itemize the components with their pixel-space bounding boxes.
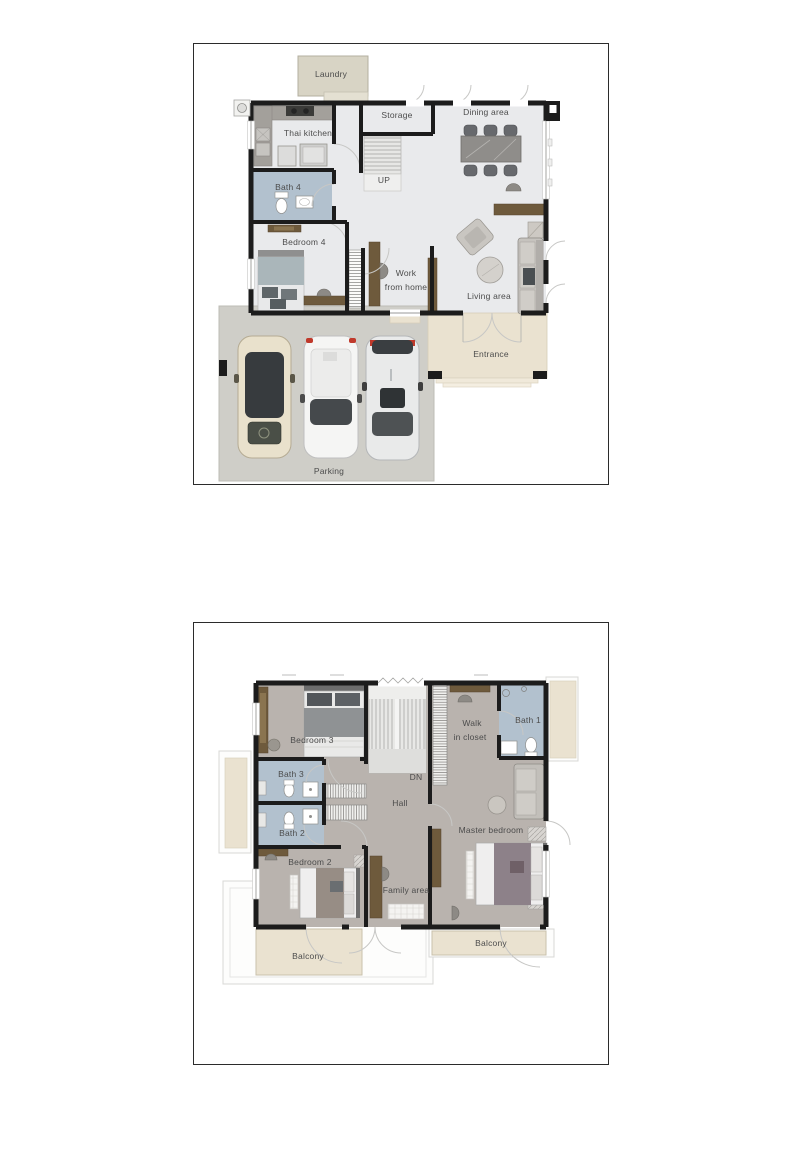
label-bedroom3: Bedroom 3 [290, 735, 333, 745]
label-family-area: Family area [383, 885, 430, 895]
label-living-area: Living area [467, 291, 511, 301]
first-floor-plan-frame: Laundry Storage Thai kitchen Dining area… [193, 43, 609, 485]
label-thai-kitchen: Thai kitchen [284, 128, 332, 138]
label-bath4: Bath 4 [275, 182, 301, 192]
label-walk-line2: in closet [454, 732, 487, 742]
label-balcony-right: Balcony [475, 938, 507, 948]
label-bath3: Bath 3 [278, 769, 304, 779]
label-storage: Storage [381, 110, 412, 120]
label-work-line2: from home [385, 282, 427, 292]
label-master-bedroom: Master bedroom [459, 825, 524, 835]
label-bedroom2: Bedroom 2 [288, 857, 331, 867]
label-dining-area: Dining area [463, 107, 509, 117]
label-hall: Hall [392, 798, 407, 808]
label-laundry: Laundry [315, 69, 347, 79]
label-bath2: Bath 2 [279, 828, 305, 838]
floor-plan-sheet: Laundry Storage Thai kitchen Dining area… [0, 0, 800, 1159]
label-bath1: Bath 1 [515, 715, 541, 725]
label-parking: Parking [314, 466, 344, 476]
label-bedroom4: Bedroom 4 [282, 237, 325, 247]
first-floor-labels: Laundry Storage Thai kitchen Dining area… [194, 44, 608, 484]
label-entrance: Entrance [473, 349, 509, 359]
label-balcony-left: Balcony [292, 951, 324, 961]
label-work-line1: Work [396, 268, 416, 278]
second-floor-labels: Bedroom 3 Bath 3 Bath 2 Bedroom 2 DN Hal… [194, 623, 608, 1064]
label-dn: DN [410, 772, 423, 782]
second-floor-plan-frame: Bedroom 3 Bath 3 Bath 2 Bedroom 2 DN Hal… [193, 622, 609, 1065]
label-up: UP [378, 175, 390, 185]
label-walk-line1: Walk [462, 718, 481, 728]
